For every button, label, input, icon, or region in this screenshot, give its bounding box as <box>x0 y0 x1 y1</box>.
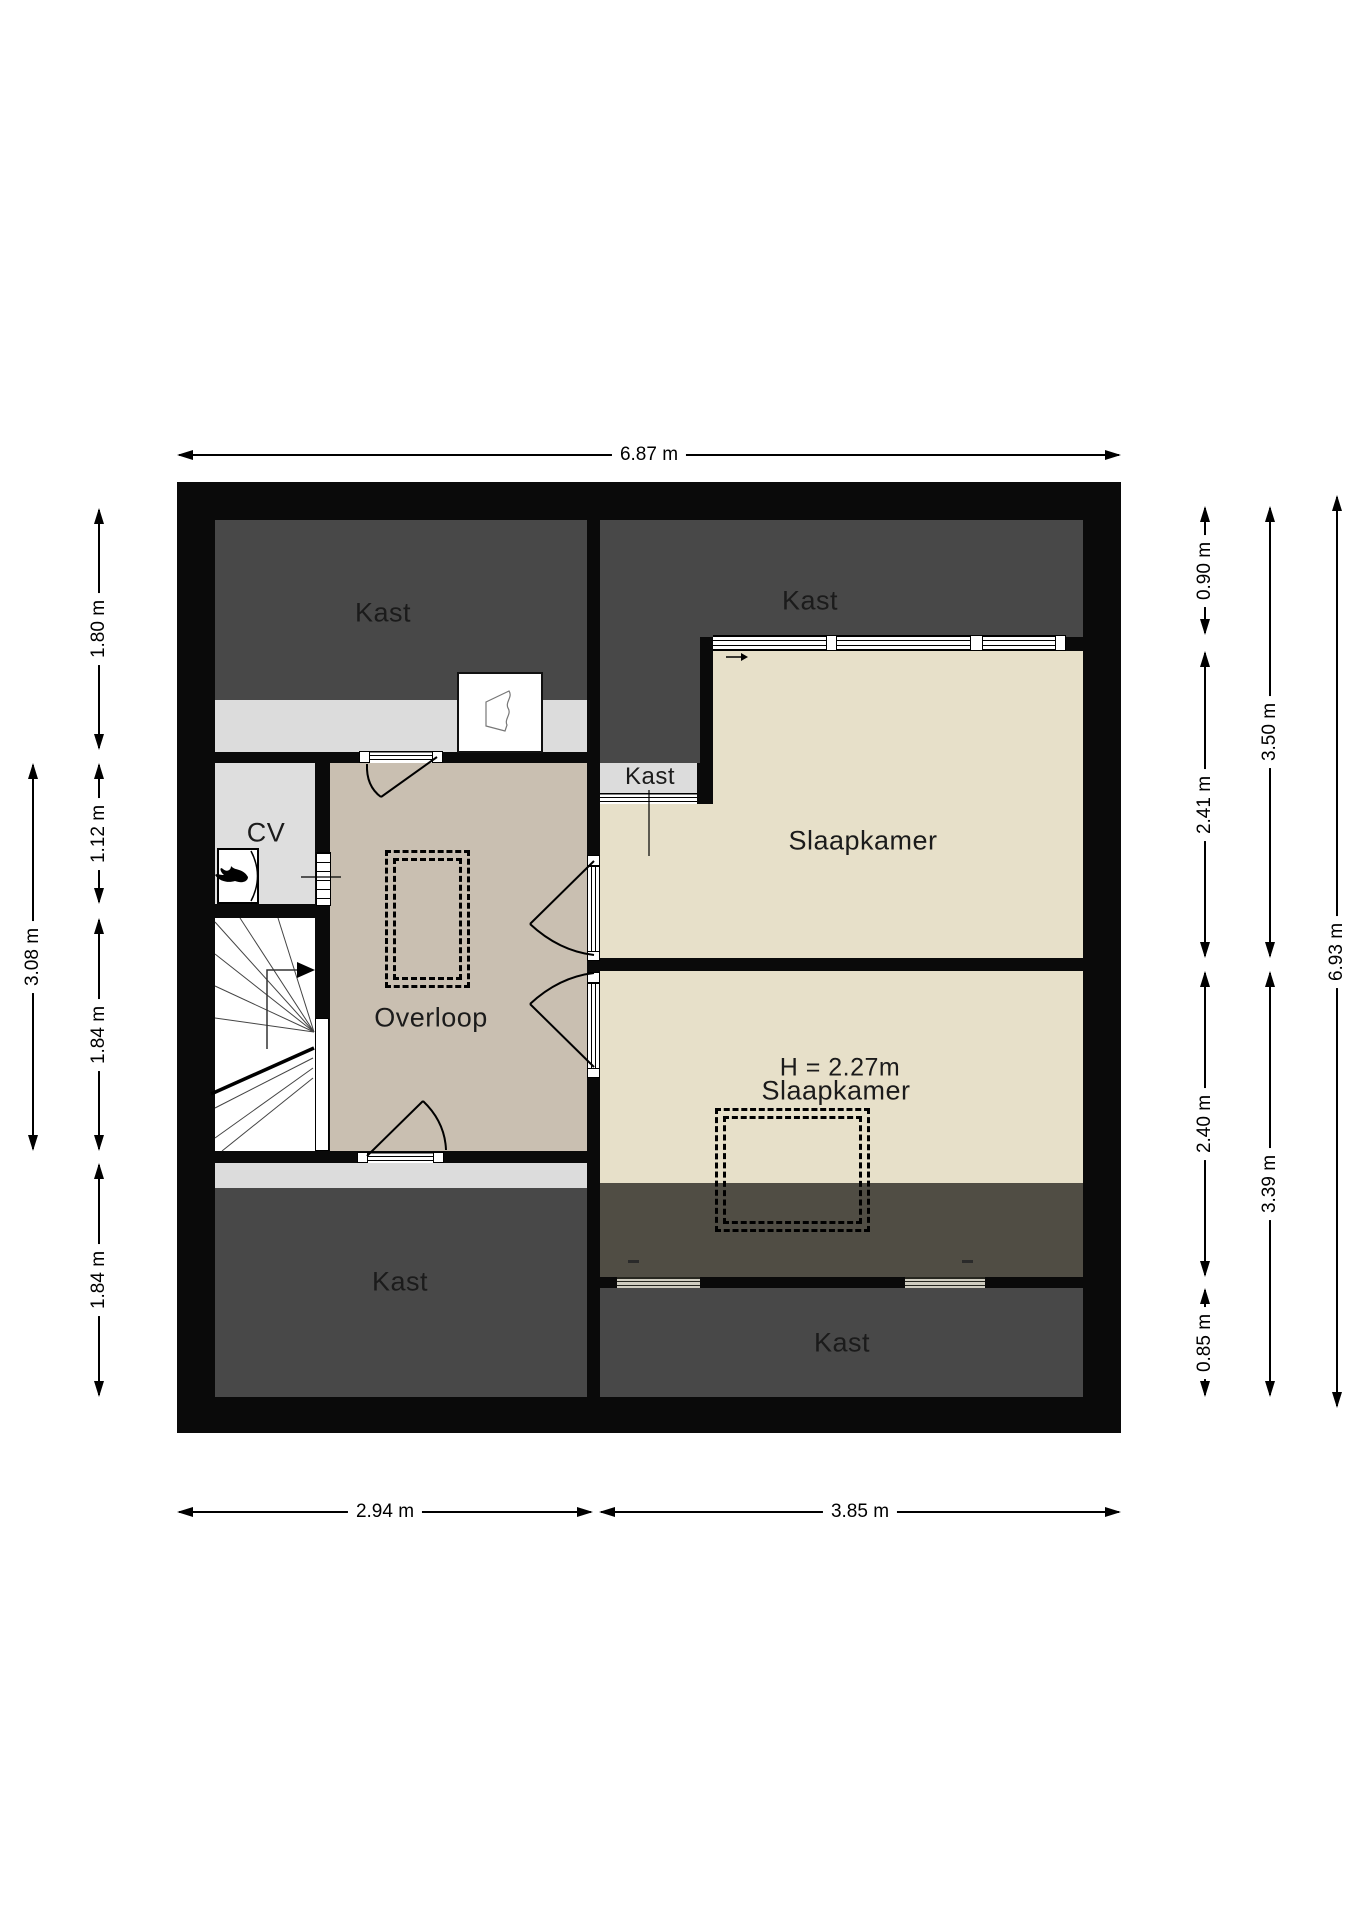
bedroom-bottom-door-band <box>587 983 600 1069</box>
closet-small-door-band <box>600 793 697 804</box>
boiler-unit <box>217 848 259 904</box>
dimension-left-1-12: 1.12 m <box>93 763 105 904</box>
roof-window-outline-bedroom-inner <box>723 1116 862 1224</box>
dormer-symbol <box>457 672 543 753</box>
dimension-right-6-93: 6.93 m <box>1331 495 1343 1408</box>
sloped-ceiling-strip-bottom-left <box>215 1163 587 1188</box>
room-bedroom-top-upper <box>713 651 1083 804</box>
dimension-right-2-41: 2.41 m <box>1199 651 1211 958</box>
label-closet-top-right: Kast <box>782 586 838 617</box>
door-jamb <box>433 1152 444 1163</box>
label-bedroom-top: Slaapkamer <box>788 826 937 857</box>
cv-door-band <box>316 852 331 906</box>
room-closet-top-right <box>600 520 1083 637</box>
label-cv: CV <box>247 818 286 849</box>
window-mullion-2 <box>970 635 983 651</box>
room-staircase <box>215 918 315 1151</box>
dimension-left-3-08: 3.08 m <box>27 763 39 1151</box>
label-closet-small: Kast <box>625 763 675 791</box>
room-closet-top-right-arm <box>600 637 700 763</box>
window-tick-left <box>628 1260 639 1263</box>
label-landing: Overloop <box>374 1003 488 1034</box>
window-bottom-right <box>905 1277 985 1288</box>
window-band-top <box>713 635 1066 651</box>
dimension-right-3-50: 3.50 m <box>1264 506 1276 958</box>
label-bedroom-bottom: Slaapkamer <box>761 1076 910 1107</box>
door-jamb <box>587 972 600 983</box>
dimension-left-1-84b: 1.84 m <box>93 1163 105 1397</box>
landing-north-door-band <box>370 751 432 763</box>
dimension-left-1-80: 1.80 m <box>93 508 105 750</box>
roof-window-outline-landing-inner <box>393 858 462 980</box>
dimension-bottom-left: 2.94 m <box>177 1506 593 1518</box>
window-mullion-1 <box>826 635 837 651</box>
floor-plan-page: Kast Kast Kast CV Overloop Slaapkamer H … <box>0 0 1358 1920</box>
label-closet-top-left: Kast <box>355 598 411 629</box>
dimension-right-0-85: 0.85 m <box>1199 1288 1211 1397</box>
window-tick-right <box>962 1260 973 1263</box>
window-end-post <box>1055 635 1066 651</box>
dimension-top-total: 6.87 m <box>177 449 1121 461</box>
stair-railing <box>315 1018 329 1151</box>
dimension-right-0-90: 0.90 m <box>1199 506 1211 635</box>
door-jamb <box>432 751 443 763</box>
dimension-left-1-84a: 1.84 m <box>93 918 105 1151</box>
dimension-right-3-39: 3.39 m <box>1264 971 1276 1397</box>
dimension-right-2-40: 2.40 m <box>1199 971 1211 1277</box>
door-jamb <box>359 751 370 763</box>
label-closet-bottom-left: Kast <box>372 1267 428 1298</box>
window-bottom-left <box>617 1277 700 1288</box>
bedroom-top-door-band <box>587 866 600 952</box>
door-jamb <box>587 855 600 866</box>
label-closet-bottom: Kast <box>814 1328 870 1359</box>
dimension-bottom-right: 3.85 m <box>599 1506 1121 1518</box>
door-jamb <box>357 1152 368 1163</box>
closet-bottom-left-door-band <box>368 1152 433 1163</box>
